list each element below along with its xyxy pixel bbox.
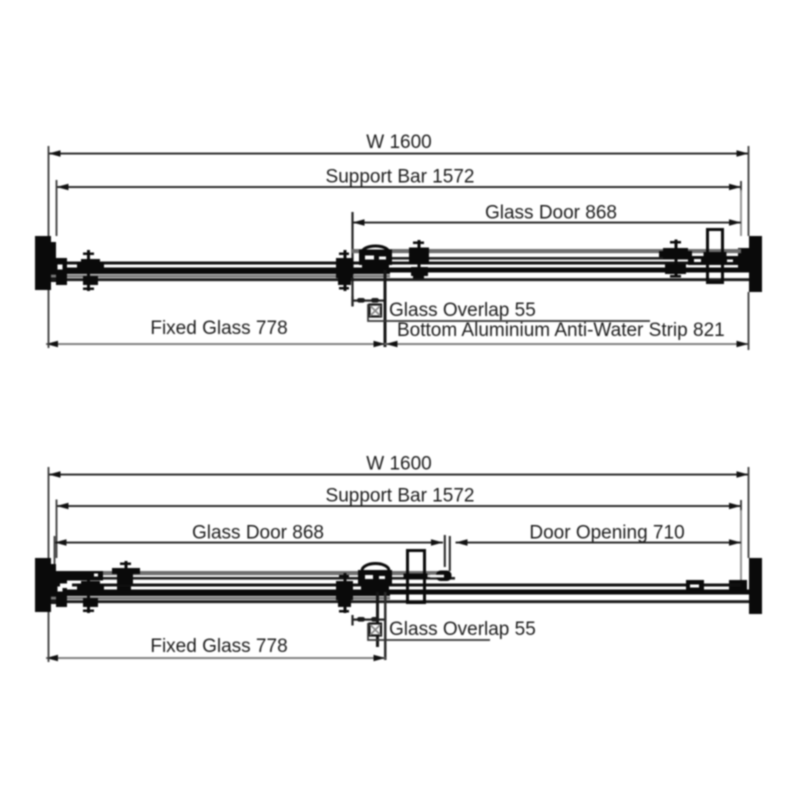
svg-text:Support Bar 1572: Support Bar 1572	[326, 486, 475, 507]
svg-text:Glass Door 868: Glass Door 868	[485, 203, 617, 224]
svg-text:Glass Overlap 55: Glass Overlap 55	[389, 619, 536, 640]
svg-text:Fixed Glass 778: Fixed Glass 778	[150, 636, 287, 657]
svg-text:Bottom Aluminium Anti-Water St: Bottom Aluminium Anti-Water Strip 821	[397, 320, 725, 341]
svg-text:Door Opening 710: Door Opening 710	[529, 523, 684, 544]
svg-text:Fixed Glass 778: Fixed Glass 778	[150, 318, 287, 339]
svg-text:Glass Door 868: Glass Door 868	[192, 523, 324, 544]
svg-text:W 1600: W 1600	[366, 454, 431, 475]
svg-text:Support Bar 1572: Support Bar 1572	[326, 167, 475, 188]
svg-text:Glass Overlap 55: Glass Overlap 55	[389, 300, 536, 321]
svg-text:W 1600: W 1600	[366, 132, 431, 153]
